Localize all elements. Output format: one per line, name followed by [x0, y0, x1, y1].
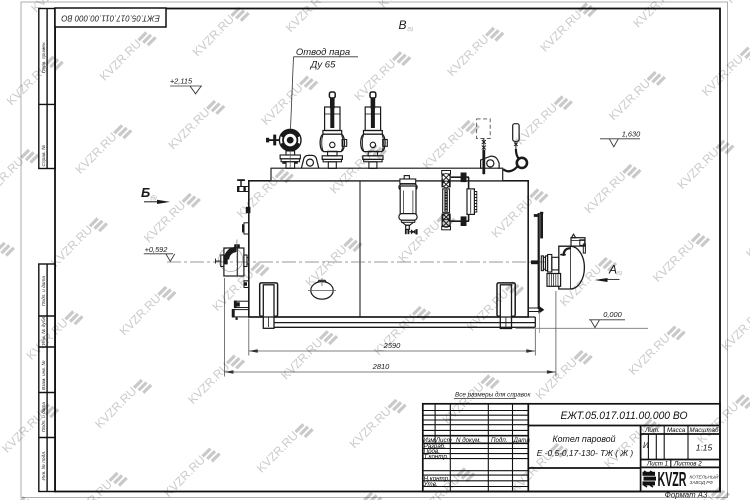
svg-text:Листов 2: Листов 2: [673, 460, 702, 467]
svg-text:Отвод пара: Отвод пара: [296, 47, 350, 58]
svg-text:Дата: Дата: [513, 437, 531, 444]
svg-text:КОТЕЛЬНЫЙ: КОТЕЛЬНЫЙ: [690, 473, 720, 480]
svg-text:Котел паровой: Котел паровой: [552, 434, 615, 444]
svg-text:Утв.: Утв.: [423, 481, 438, 488]
svg-text:Масса: Масса: [667, 427, 686, 434]
svg-text:1,630: 1,630: [622, 130, 641, 139]
svg-text:Справ. №: Справ. №: [41, 145, 47, 167]
svg-text:Подп. и дата: Подп. и дата: [41, 276, 47, 306]
svg-text:N докум.: N докум.: [456, 437, 481, 444]
svg-text:ЕЖТ.05.017.011.00.000 ВО: ЕЖТ.05.017.011.00.000 ВО: [561, 410, 688, 422]
svg-text:Инв. № подл.: Инв. № подл.: [41, 451, 47, 481]
svg-text:Лист 1: Лист 1: [646, 460, 668, 467]
svg-text:ЕЖТ.05.017.011.00.000 ВО: ЕЖТ.05.017.011.00.000 ВО: [61, 13, 160, 22]
svg-text:ЗАВОД РФ: ЗАВОД РФ: [690, 480, 714, 485]
svg-text:(5): (5): [408, 27, 414, 32]
svg-text:Подп.: Подп.: [491, 437, 507, 444]
svg-text:KVZR: KVZR: [658, 469, 687, 491]
svg-text:(5): (5): [617, 271, 623, 276]
svg-text:Т.контр.: Т.контр.: [424, 453, 449, 460]
svg-text:Взам. инв. №: Взам. инв. №: [41, 360, 47, 390]
svg-text:+0,592: +0,592: [145, 245, 168, 254]
svg-text:В: В: [399, 18, 407, 32]
svg-text:0,000: 0,000: [603, 310, 622, 319]
svg-text:И: И: [643, 441, 649, 450]
svg-text:2810: 2810: [372, 362, 391, 371]
svg-text:(5): (5): [151, 196, 157, 202]
svg-text:Ду 65: Ду 65: [310, 60, 336, 71]
svg-text:+2,115: +2,115: [170, 77, 193, 86]
svg-text:Б: Б: [141, 185, 150, 200]
